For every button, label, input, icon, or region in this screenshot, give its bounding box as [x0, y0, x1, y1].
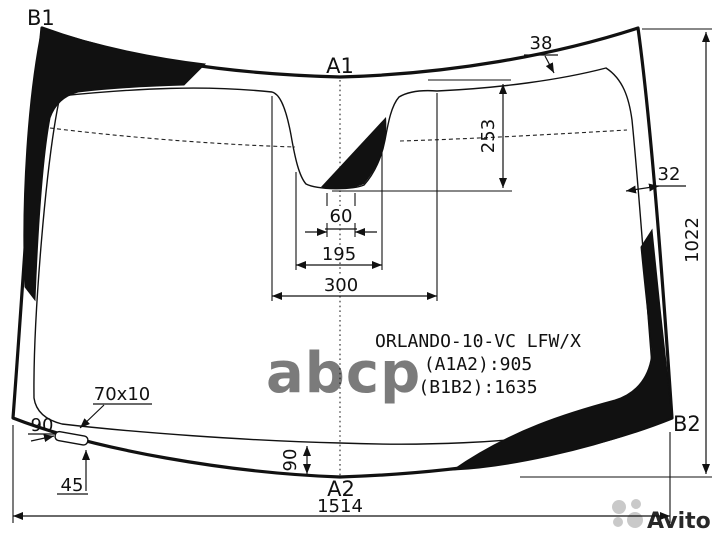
label-a1: A1 [326, 54, 354, 78]
dim-sticker-size: 70x10 [94, 384, 150, 405]
windshield-technical-drawing: abcp Avito [0, 0, 720, 540]
label-b1: B1 [27, 6, 55, 30]
sticker-70x10 [54, 431, 88, 446]
part-dim-b1b2: (B1B2):1635 [418, 377, 537, 398]
mirror-mount-black-patch [321, 117, 386, 189]
dim-side-band: 32 [658, 164, 681, 185]
dim-mirror-300: 300 [324, 275, 358, 296]
part-code: ORLANDO-10-VC LFW/X [375, 331, 581, 352]
dim-mirror-depth: 253 [478, 119, 499, 153]
avito-watermark-text: Avito [647, 509, 711, 534]
part-dim-a1a2: (A1A2):905 [424, 354, 532, 375]
dim-sticker-offset-left: 90 [31, 415, 54, 436]
dim-glass-height: 1022 [682, 217, 703, 263]
windshield-diagram-page: abcp Avito [0, 0, 720, 540]
shade-band-line-right [400, 130, 627, 141]
shade-band-line-left [50, 128, 295, 147]
dim-sticker-offset-bottom: 45 [61, 475, 84, 496]
band-top-left-corner [24, 28, 205, 300]
dim-bottom-band: 90 [280, 449, 301, 472]
avito-logo-icon [612, 499, 643, 528]
label-a2: A2 [327, 477, 355, 501]
dim-mirror-60: 60 [330, 206, 353, 227]
label-b2: B2 [673, 412, 701, 436]
dim-mirror-195: 195 [322, 244, 356, 265]
dim-top-band: 38 [530, 33, 553, 54]
